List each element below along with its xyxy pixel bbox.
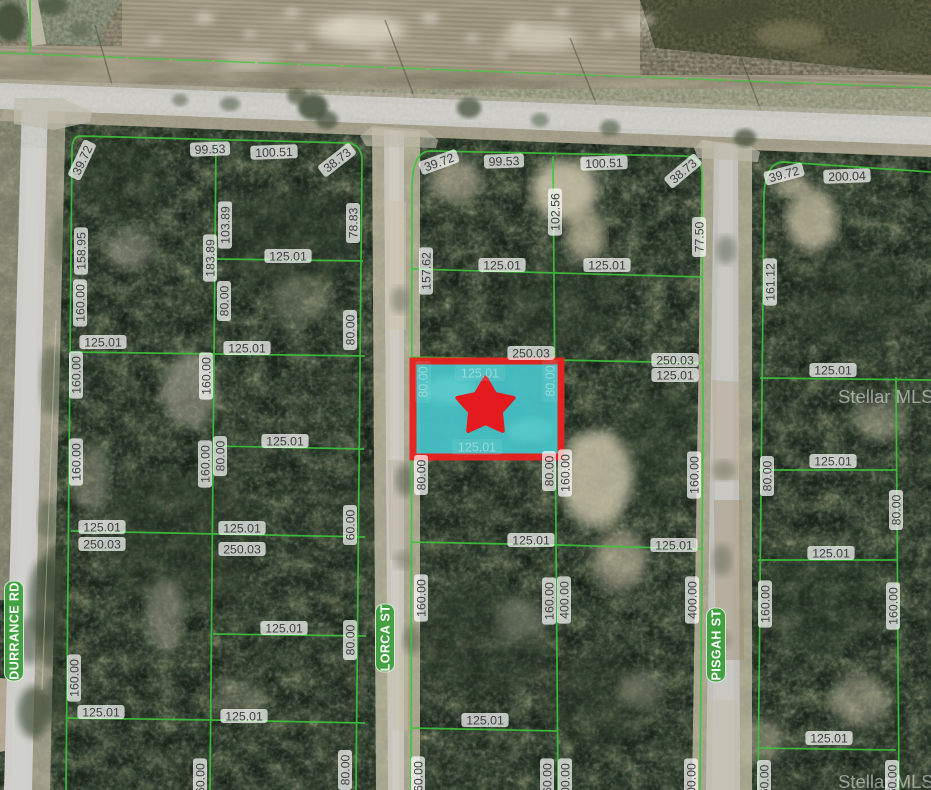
svg-text:103.89: 103.89 [219,206,233,244]
svg-text:125.01: 125.01 [458,441,496,455]
svg-text:Stellar MLS: Stellar MLS [838,386,931,407]
svg-text:60.00: 60.00 [758,764,772,790]
svg-text:160.00: 160.00 [70,356,84,394]
svg-text:400.00: 400.00 [685,763,699,790]
svg-text:80.00: 80.00 [543,455,557,486]
svg-text:80.00: 80.00 [344,314,358,345]
svg-text:125.01: 125.01 [461,367,499,381]
svg-text:160.00: 160.00 [543,582,557,620]
svg-text:80.00: 80.00 [415,459,429,490]
svg-text:161.12: 161.12 [764,263,778,301]
svg-text:125.01: 125.01 [269,250,307,264]
svg-text:125.01: 125.01 [266,435,304,449]
svg-text:125.01: 125.01 [223,522,261,536]
svg-text:99.53: 99.53 [194,142,225,157]
svg-text:LORCA ST: LORCA ST [379,605,393,672]
svg-text:160.00: 160.00 [688,456,702,494]
svg-text:80.00: 80.00 [339,754,353,785]
svg-text:DURRANCE RD: DURRANCE RD [8,582,22,679]
svg-text:183.89: 183.89 [204,239,218,277]
svg-text:80.00: 80.00 [417,366,431,397]
svg-text:160.00: 160.00 [412,761,426,790]
svg-text:160.00: 160.00 [194,763,208,790]
svg-text:158.95: 158.95 [75,232,89,270]
svg-text:PISGAH ST: PISGAH ST [710,610,724,681]
svg-text:200.04: 200.04 [828,169,866,184]
svg-text:250.03: 250.03 [223,543,261,557]
svg-text:250.03: 250.03 [83,538,121,552]
svg-text:125.01: 125.01 [84,336,122,350]
svg-text:77.50: 77.50 [693,221,707,252]
svg-text:160.00: 160.00 [200,357,214,395]
svg-text:102.56: 102.56 [549,193,563,231]
svg-text:80.00: 80.00 [761,460,775,491]
svg-text:100.51: 100.51 [585,156,623,171]
svg-text:125.01: 125.01 [483,259,521,273]
svg-text:160.00: 160.00 [559,454,573,492]
svg-text:125.01: 125.01 [82,706,120,720]
svg-text:250.03: 250.03 [656,354,694,368]
svg-text:160.00: 160.00 [759,585,773,623]
svg-text:125.01: 125.01 [228,342,266,356]
svg-text:99.53: 99.53 [488,154,519,169]
svg-text:400.00: 400.00 [559,763,573,790]
svg-text:400.00: 400.00 [558,581,572,619]
svg-text:80.00: 80.00 [890,494,904,525]
svg-text:125.01: 125.01 [656,369,694,383]
svg-text:400.00: 400.00 [686,581,700,619]
svg-text:80.00: 80.00 [544,365,558,396]
svg-text:160.00: 160.00 [415,579,429,617]
svg-text:80.00: 80.00 [218,285,232,316]
svg-text:250.03: 250.03 [512,347,550,361]
svg-text:125.01: 125.01 [810,732,848,746]
svg-text:Stellar MLS: Stellar MLS [838,771,931,790]
svg-text:125.01: 125.01 [466,714,504,728]
svg-text:78.83: 78.83 [347,207,361,238]
svg-text:125.01: 125.01 [814,455,852,469]
svg-text:80.00: 80.00 [214,440,228,471]
svg-text:125.01: 125.01 [265,622,303,636]
svg-text:160.00: 160.00 [74,284,88,322]
svg-text:160.00: 160.00 [70,443,84,481]
svg-text:125.01: 125.01 [812,547,850,561]
svg-text:125.01: 125.01 [655,539,693,553]
svg-text:160.00: 160.00 [541,763,555,790]
svg-text:125.01: 125.01 [225,710,263,724]
svg-text:100.51: 100.51 [255,145,293,160]
svg-text:160.00: 160.00 [199,445,213,483]
svg-text:157.62: 157.62 [420,252,434,290]
svg-text:80.00: 80.00 [344,624,358,655]
svg-text:60.00: 60.00 [344,509,358,540]
svg-text:125.01: 125.01 [814,364,852,378]
svg-text:125.01: 125.01 [588,259,626,273]
svg-text:160.00: 160.00 [68,659,82,697]
svg-text:125.01: 125.01 [512,534,550,548]
svg-text:125.01: 125.01 [83,521,121,535]
svg-text:160.00: 160.00 [887,587,901,625]
